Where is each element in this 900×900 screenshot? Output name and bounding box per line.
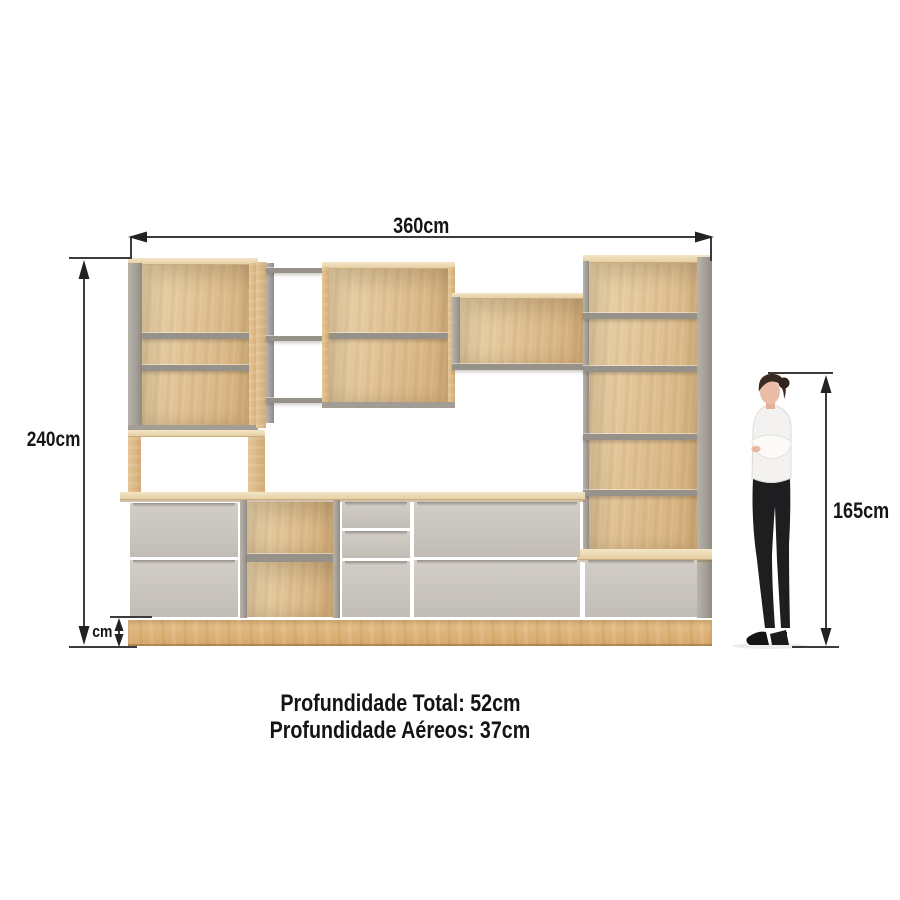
width-dimension-line — [131, 237, 711, 261]
person-shadow — [732, 643, 808, 649]
person-hair-bun — [779, 378, 790, 389]
footer-depth-total: Profundidade Total: 52cm — [150, 690, 650, 717]
product-dimension-diagram: 360cm 240cm cm 165cm Profundidade Total:… — [0, 0, 900, 900]
dimension-overlay — [0, 0, 900, 900]
person-hand — [752, 446, 761, 452]
person-height-label: 165cm — [833, 498, 900, 524]
footer-depth-info: Profundidade Total: 52cm Profundidade Aé… — [150, 690, 650, 744]
person-figure — [732, 374, 808, 649]
person-heel-front — [763, 633, 766, 645]
person-heel-back — [784, 632, 787, 645]
person-pants — [753, 478, 791, 628]
footer-depth-wall: Profundidade Aéreos: 37cm — [150, 717, 650, 744]
plinth-dimension-label: cm — [88, 622, 116, 642]
width-dimension-label: 360cm — [356, 213, 486, 239]
height-dimension-line — [69, 258, 137, 647]
height-dimension-label: 240cm — [8, 428, 80, 452]
